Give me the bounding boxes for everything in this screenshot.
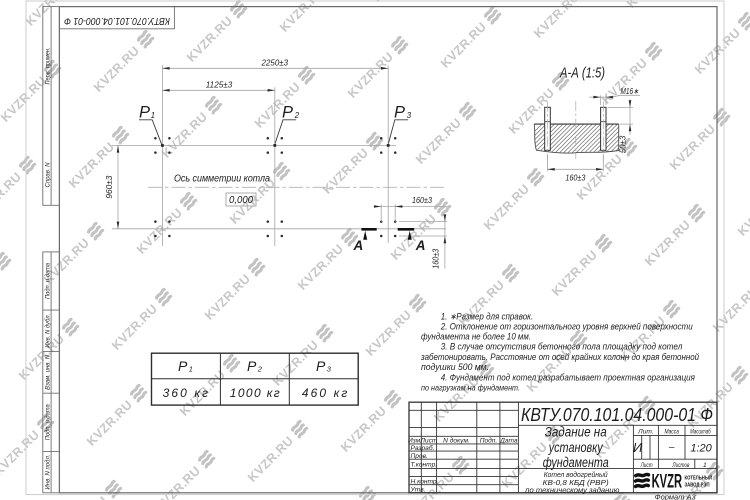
svg-text:50±3: 50±3 bbox=[617, 135, 627, 153]
svg-text:КВТУ.070.101.04.000-01 Ф: КВТУ.070.101.04.000-01 Ф bbox=[64, 15, 170, 26]
svg-text:забетонировать. Расстояние от: забетонировать. Расстояние от осей крайн… bbox=[420, 352, 699, 362]
svg-text:KVZR.RU: KVZR.RU bbox=[624, 0, 675, 11]
svg-text:подушки 500 мм.: подушки 500 мм. bbox=[421, 362, 489, 372]
svg-text:Лист: Лист bbox=[419, 437, 437, 444]
svg-text:KVZR.RU: KVZR.RU bbox=[692, 26, 743, 77]
svg-text:Листов: Листов bbox=[672, 462, 690, 469]
svg-text:KVZR.RU: KVZR.RU bbox=[320, 146, 371, 197]
svg-text:фундамента не более 10 мм.: фундамента не более 10 мм. bbox=[421, 332, 531, 342]
svg-text:KVZR.RU: KVZR.RU bbox=[159, 110, 210, 161]
svg-text:И: И bbox=[633, 440, 643, 455]
svg-text:Перв. примен.: Перв. примен. bbox=[45, 47, 52, 84]
svg-text:Масса: Масса bbox=[664, 428, 679, 435]
svg-text:Дата: Дата bbox=[499, 437, 518, 444]
svg-text:KVZR.RU: KVZR.RU bbox=[252, 80, 303, 131]
svg-text:KVZR.RU: KVZR.RU bbox=[413, 116, 464, 167]
svg-text:1: 1 bbox=[189, 364, 193, 373]
svg-text:Лит.: Лит. bbox=[637, 428, 654, 435]
svg-text:P: P bbox=[394, 103, 405, 121]
svg-text:Лист: Лист bbox=[640, 462, 653, 469]
svg-text:1000 кг: 1000 кг bbox=[230, 386, 280, 400]
svg-text:Формат А3: Формат А3 bbox=[655, 492, 697, 500]
svg-text:2250±3: 2250±3 bbox=[261, 58, 289, 68]
svg-text:P: P bbox=[282, 103, 293, 121]
svg-text:КВТУ.070.101.04.000-01 Ф: КВТУ.070.101.04.000-01 Ф bbox=[521, 405, 713, 425]
svg-text:P: P bbox=[316, 358, 326, 374]
svg-text:KVZR.RU: KVZR.RU bbox=[277, 0, 328, 35]
svg-text:Ось симметрии котла: Ось симметрии котла bbox=[174, 174, 270, 185]
svg-text:KVZR.RU: KVZR.RU bbox=[184, 14, 235, 65]
svg-text:KVZR.RU: KVZR.RU bbox=[710, 284, 750, 335]
svg-text:0,000: 0,000 bbox=[229, 194, 253, 206]
svg-text:1:20: 1:20 bbox=[690, 443, 712, 455]
svg-text:Т.контр.: Т.контр. bbox=[411, 462, 438, 469]
svg-text:KVZR.RU: KVZR.RU bbox=[0, 74, 49, 125]
svg-text:KVZR.RU: KVZR.RU bbox=[735, 188, 750, 239]
svg-text:KVZR.RU: KVZR.RU bbox=[245, 434, 296, 485]
svg-text:KVZR.RU: KVZR.RU bbox=[270, 338, 321, 389]
svg-text:Подп.: Подп. bbox=[480, 436, 498, 444]
svg-text:P: P bbox=[247, 358, 257, 374]
svg-text:по нагрузкам на фундамент.: по нагрузкам на фундамент. bbox=[421, 382, 520, 392]
svg-text:N докум.: N докум. bbox=[443, 436, 470, 444]
svg-text:KVZR.RU: KVZR.RU bbox=[0, 170, 24, 221]
svg-text:960±3: 960±3 bbox=[104, 175, 114, 198]
svg-text:ЗАВОД РЭП: ЗАВОД РЭП bbox=[685, 483, 710, 489]
svg-text:KVZR.RU: KVZR.RU bbox=[363, 308, 414, 359]
svg-text:KVZR.RU: KVZR.RU bbox=[134, 206, 185, 257]
svg-text:KVZR.RU: KVZR.RU bbox=[549, 248, 600, 299]
svg-text:M16∗: M16∗ bbox=[621, 86, 639, 96]
svg-text:фундамента: фундамента bbox=[543, 455, 609, 470]
svg-text:3. В случае отсутствия бетонн: 3. В случае отсутствия бетонного пола пл… bbox=[441, 342, 683, 352]
svg-text:А: А bbox=[415, 238, 426, 253]
svg-text:А: А bbox=[353, 238, 364, 253]
svg-text:KVZR.RU: KVZR.RU bbox=[84, 398, 135, 449]
svg-text:KVZR.RU: KVZR.RU bbox=[667, 122, 718, 173]
svg-text:Утв.: Утв. bbox=[410, 486, 426, 493]
svg-text:2: 2 bbox=[294, 111, 300, 120]
svg-text:КОТЕЛЬНЫЙ: КОТЕЛЬНЫЙ bbox=[685, 473, 713, 481]
svg-text:KVZR.RU: KVZR.RU bbox=[642, 218, 693, 269]
svg-text:460 кг: 460 кг bbox=[302, 386, 347, 400]
svg-text:1. ∗Размер для справок.: 1. ∗Размер для справок. bbox=[441, 311, 534, 321]
svg-text:А-А (1:5): А-А (1:5) bbox=[559, 64, 605, 81]
svg-text:2. Отклонение от горизонтальн: 2. Отклонение от горизонтального уровня … bbox=[440, 322, 693, 332]
svg-text:Инв. N подл.: Инв. N подл. bbox=[44, 454, 52, 489]
svg-text:1: 1 bbox=[703, 462, 707, 469]
svg-text:Справ. N: Справ. N bbox=[45, 162, 52, 187]
svg-text:3: 3 bbox=[407, 111, 412, 120]
svg-text:KVZR: KVZR bbox=[652, 471, 683, 492]
svg-text:160±3: 160±3 bbox=[565, 173, 585, 183]
svg-text:2: 2 bbox=[257, 364, 263, 373]
svg-text:Взам. инв. N: Взам. инв. N bbox=[45, 355, 52, 390]
svg-text:KVZR.RU: KVZR.RU bbox=[599, 56, 650, 107]
svg-text:3: 3 bbox=[327, 364, 332, 373]
svg-text:160±3: 160±3 bbox=[430, 249, 440, 269]
svg-text:KVZR.RU: KVZR.RU bbox=[91, 44, 142, 95]
svg-text:Масштаб: Масштаб bbox=[690, 427, 711, 435]
svg-text:KVZR.RU: KVZR.RU bbox=[0, 428, 42, 479]
svg-text:KVZR.RU: KVZR.RU bbox=[438, 20, 489, 71]
svg-text:4. Фундамент под котел разраб: 4. Фундамент под котел разрабатывает про… bbox=[441, 372, 695, 382]
svg-text:Подп. и дата: Подп. и дата bbox=[44, 404, 52, 440]
svg-text:Пров.: Пров. bbox=[411, 453, 429, 460]
svg-text:P: P bbox=[139, 103, 150, 121]
svg-text:Н.контр.: Н.контр. bbox=[411, 479, 439, 486]
svg-text:1: 1 bbox=[151, 111, 155, 120]
svg-text:P: P bbox=[178, 358, 188, 374]
svg-text:KVZR.RU: KVZR.RU bbox=[109, 302, 160, 353]
svg-text:по техническому заданию: по техническому заданию bbox=[525, 485, 619, 494]
svg-text:KVZR.RU: KVZR.RU bbox=[295, 242, 346, 293]
svg-text:Инв. N дубл.: Инв. N дубл. bbox=[44, 314, 52, 348]
svg-text:установку: установку bbox=[548, 440, 604, 455]
svg-text:Разраб.: Разраб. bbox=[411, 444, 435, 452]
svg-text:1125±3: 1125±3 bbox=[206, 80, 233, 90]
svg-text:Подп. и дата: Подп. и дата bbox=[44, 263, 52, 299]
svg-text:–: – bbox=[668, 442, 675, 453]
svg-text:KVZR.RU: KVZR.RU bbox=[481, 182, 532, 233]
svg-text:Задание на: Задание на bbox=[545, 424, 607, 439]
svg-text:KVZR.RU: KVZR.RU bbox=[338, 404, 389, 455]
svg-text:160±3: 160±3 bbox=[412, 195, 432, 205]
svg-text:KVZR.RU: KVZR.RU bbox=[202, 272, 253, 323]
svg-text:360 кг: 360 кг bbox=[163, 386, 208, 400]
